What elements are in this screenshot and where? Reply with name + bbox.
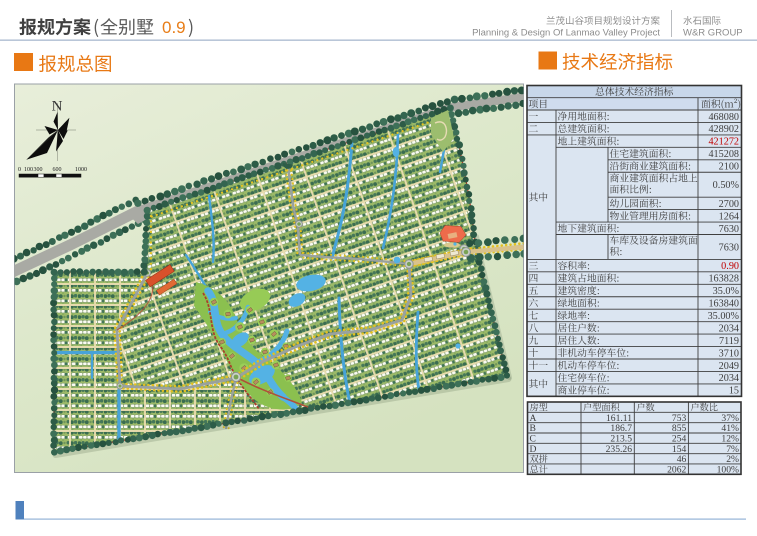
svg-text:421272: 421272 xyxy=(708,137,739,148)
svg-text:2034: 2034 xyxy=(719,373,739,384)
svg-text:35.00%: 35.00% xyxy=(708,311,740,322)
svg-text:0: 0 xyxy=(18,167,21,173)
svg-text:Planning & Design Of Lanmao Va: Planning & Design Of Lanmao Valley Proje… xyxy=(472,28,660,39)
svg-text:235.26: 235.26 xyxy=(606,444,633,455)
svg-text:600: 600 xyxy=(53,167,62,173)
svg-text:35.0%: 35.0% xyxy=(713,286,740,297)
svg-text:15: 15 xyxy=(729,386,739,397)
svg-text:300: 300 xyxy=(34,167,43,173)
svg-text:2049: 2049 xyxy=(719,361,739,372)
svg-text:1264: 1264 xyxy=(719,211,739,222)
svg-text:163828: 163828 xyxy=(708,274,739,285)
svg-text:100: 100 xyxy=(24,167,33,173)
svg-text:163840: 163840 xyxy=(708,299,739,310)
svg-text:428902: 428902 xyxy=(708,124,739,135)
svg-text:2062: 2062 xyxy=(667,464,686,475)
svg-text:7630: 7630 xyxy=(719,242,739,253)
svg-text:415208: 415208 xyxy=(708,149,739,160)
svg-text:468080: 468080 xyxy=(708,112,739,123)
svg-text:2700: 2700 xyxy=(719,199,739,210)
svg-text:1000: 1000 xyxy=(75,167,87,173)
svg-text:D: D xyxy=(530,444,537,455)
svg-text:7630: 7630 xyxy=(719,224,739,235)
svg-text:0.50%: 0.50% xyxy=(713,180,740,191)
svg-text:N: N xyxy=(52,99,63,115)
svg-text:2034: 2034 xyxy=(719,323,739,334)
svg-text:100%: 100% xyxy=(717,464,739,475)
svg-text:2100: 2100 xyxy=(719,162,739,173)
svg-text:7119: 7119 xyxy=(719,336,739,347)
svg-text:W&R GROUP: W&R GROUP xyxy=(683,28,743,39)
svg-text:0.9: 0.9 xyxy=(162,18,186,37)
svg-text:3710: 3710 xyxy=(719,348,739,359)
svg-text:0.90: 0.90 xyxy=(721,261,739,272)
